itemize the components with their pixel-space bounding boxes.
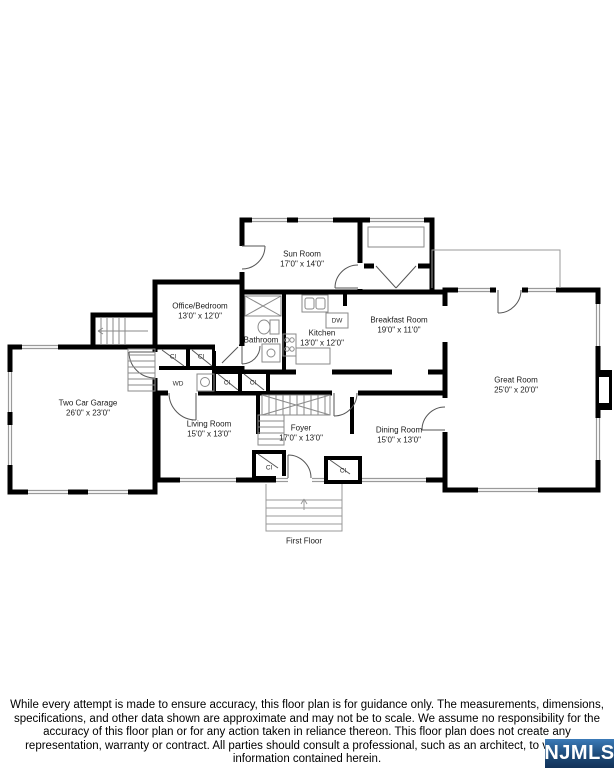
room-name: Living Room [187,420,231,430]
room-name: Two Car Garage [59,399,118,409]
room-name: Great Room [494,376,538,386]
closet-label: Cl [224,380,230,387]
room-label-dining-room: Dining Room 15'0" x 13'0" [376,426,422,445]
room-dims: 26'0" x 23'0" [59,408,118,418]
room-dims: 13'0" x 12'0" [300,338,344,348]
room-label-two-car-garage: Two Car Garage 26'0" x 23'0" [59,399,118,418]
room-label-foyer: Foyer 17'0" x 13'0" [279,424,323,443]
deck-outline [432,250,560,288]
floor-name-label: First Floor [286,537,322,546]
room-label-kitchen: Kitchen 13'0" x 12'0" [300,329,344,348]
room-name: Breakfast Room [370,316,427,326]
room-name: Office/Bedroom [172,302,227,312]
closet-label: Cl [250,380,256,387]
room-name: Foyer [279,424,323,434]
closet-label: Cl [340,468,346,475]
room-label-sun-room: Sun Room 17'0" x 14'0" [280,250,324,269]
room-label-bathroom: Bathroom [244,335,279,345]
disclaimer-text: While every attempt is made to ensure ac… [5,699,609,767]
room-dims: 15'0" x 13'0" [376,435,422,445]
room-label-breakfast-room: Breakfast Room 19'0" x 11'0" [370,316,427,335]
floor-plan-page: Sun Room 17'0" x 14'0" Office/Bedroom 13… [0,0,614,768]
room-dims: 25'0" x 20'0" [494,385,538,395]
room-dims: 17'0" x 14'0" [280,259,324,269]
room-dims: 15'0" x 13'0" [187,429,231,439]
room-name: Dining Room [376,426,422,436]
room-name: Sun Room [280,250,324,260]
room-label-great-room: Great Room 25'0" x 20'0" [494,376,538,395]
closet-label: Cl [170,354,176,361]
room-dims: 17'0" x 13'0" [279,433,323,443]
washer-dryer-label: WD [173,381,184,388]
closet-label: Cl [266,465,272,472]
room-name: Bathroom [244,335,279,345]
dishwasher-label: DW [332,318,343,325]
room-dims: 13'0" x 12'0" [172,311,227,321]
room-dims: 19'0" x 11'0" [370,325,427,335]
front-steps [266,484,342,531]
njmls-logo: NJMLS [545,739,614,768]
room-name: Kitchen [300,329,344,339]
closet-label: Cl [198,354,204,361]
room-label-living-room: Living Room 15'0" x 13'0" [187,420,231,439]
fireplace [596,370,612,410]
room-label-office-bedroom: Office/Bedroom 13'0" x 12'0" [172,302,227,321]
